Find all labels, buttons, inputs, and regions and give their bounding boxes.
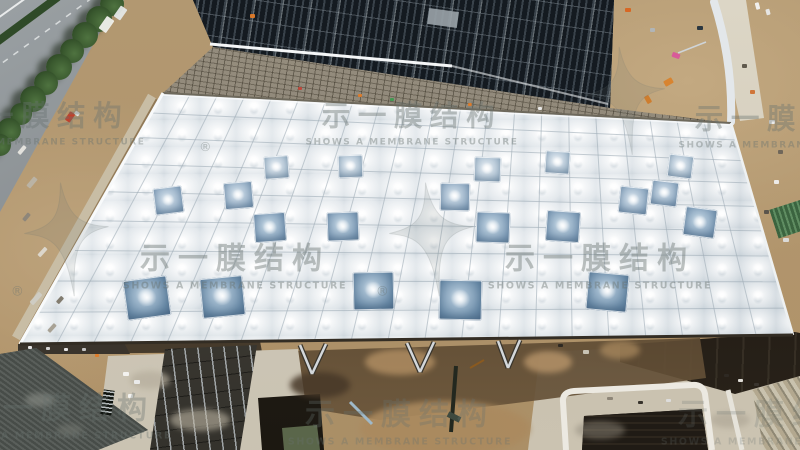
- watermark-text-en: SHOWS A MEMBRANE STRUCTURE: [679, 140, 800, 150]
- clutter-object: [738, 379, 743, 382]
- membrane-star-logo: [19, 179, 114, 301]
- clutter-object: [583, 350, 589, 354]
- watermark-text-en: SHOWS A MEMBRANE STRUCTURE: [0, 137, 145, 147]
- watermark-text-en: SHOWS A MEMBRANE STRUCTURE: [306, 137, 519, 147]
- clutter-object: [250, 14, 255, 18]
- clutter-object: [783, 238, 789, 242]
- watermark: 示一膜结构SHOWS A MEMBRANE STRUCTURE: [0, 395, 172, 442]
- watermark-text-cn: 示一膜结构: [488, 245, 712, 275]
- watermark: 示一膜结构SHOWS A MEMBRANE STRUCTURE®: [488, 245, 712, 292]
- watermark-text-cn: 示一膜结构: [661, 401, 800, 431]
- watermark-text-cn: 示一膜结构: [679, 106, 800, 135]
- watermark: 示一膜结构SHOWS A MEMBRANE STRUCTURE: [288, 401, 512, 448]
- watermark-text-en: SHOWS A MEMBRANE STRUCTURE: [0, 431, 172, 442]
- roof-bottom-edge: [20, 335, 793, 344]
- aerial-construction-photo: 示一膜结构SHOWS A MEMBRANE STRUCTURE®示一膜结构SHO…: [0, 0, 800, 450]
- watermark: 示一膜结构SHOWS A MEMBRANE STRUCTURE: [0, 103, 145, 148]
- clutter-object: [28, 346, 32, 349]
- clutter-object: [558, 344, 563, 347]
- watermark: 示一膜结构SHOWS A MEMBRANE STRUCTURE®: [123, 245, 347, 292]
- v-column-shadow-2: [407, 342, 434, 372]
- watermark-text-en: SHOWS A MEMBRANE STRUCTURE: [661, 437, 800, 448]
- clutter-object: [697, 26, 703, 30]
- watermark: 示一膜结构SHOWS A MEMBRANE STRUCTURE®: [306, 103, 519, 148]
- watermark-text-cn: 示一膜结构: [0, 103, 145, 132]
- clutter-object: [778, 150, 783, 154]
- clutter-object: [298, 87, 302, 90]
- clutter-object: [750, 90, 755, 94]
- clutter-object: [46, 347, 50, 350]
- clutter-object: [754, 383, 759, 386]
- watermark: 示一膜结构SHOWS A MEMBRANE STRUCTURE: [679, 106, 800, 151]
- star-shape: [384, 178, 480, 301]
- star-shape: [19, 178, 115, 301]
- clutter-object: [95, 354, 99, 357]
- clutter-object: [625, 8, 631, 12]
- clutter-object: [123, 372, 129, 376]
- watermark-text-cn: 示一膜结构: [306, 103, 519, 132]
- watermark-text-cn: 示一膜结构: [0, 395, 172, 425]
- registered-trademark-symbol: ®: [199, 141, 211, 155]
- clutter-object: [650, 28, 655, 32]
- star-shape: [580, 43, 671, 160]
- watermark: 示一膜结构SHOWS A MEMBRANE STRUCTURE: [661, 401, 800, 448]
- watermark-text-en: SHOWS A MEMBRANE STRUCTURE: [123, 281, 347, 292]
- clutter-object: [538, 107, 542, 110]
- clutter-object: [638, 401, 643, 404]
- clutter-object: [724, 374, 729, 377]
- clutter-object: [764, 210, 769, 214]
- solar-fascia-beam: [210, 44, 452, 66]
- membrane-star-logo: [580, 43, 670, 159]
- watermark-text-cn: 示一膜结构: [123, 245, 347, 275]
- clutter-object: [742, 64, 747, 68]
- registered-trademark-symbol: ®: [11, 285, 24, 300]
- clutter-object: [82, 348, 86, 351]
- clutter-object: [607, 397, 613, 400]
- membrane-star-logo: [384, 179, 479, 301]
- registered-trademark-symbol: ®: [376, 285, 389, 300]
- watermark-text-en: SHOWS A MEMBRANE STRUCTURE: [488, 281, 712, 292]
- watermark-text-cn: 示一膜结构: [288, 401, 512, 431]
- boom-lift-arm: [678, 42, 706, 53]
- clutter-object: [134, 380, 140, 384]
- clutter-object: [64, 348, 68, 351]
- clutter-object: [774, 180, 779, 184]
- excavator-arm: [470, 360, 484, 368]
- clutter-object: [358, 94, 362, 97]
- watermark-text-en: SHOWS A MEMBRANE STRUCTURE: [288, 437, 512, 448]
